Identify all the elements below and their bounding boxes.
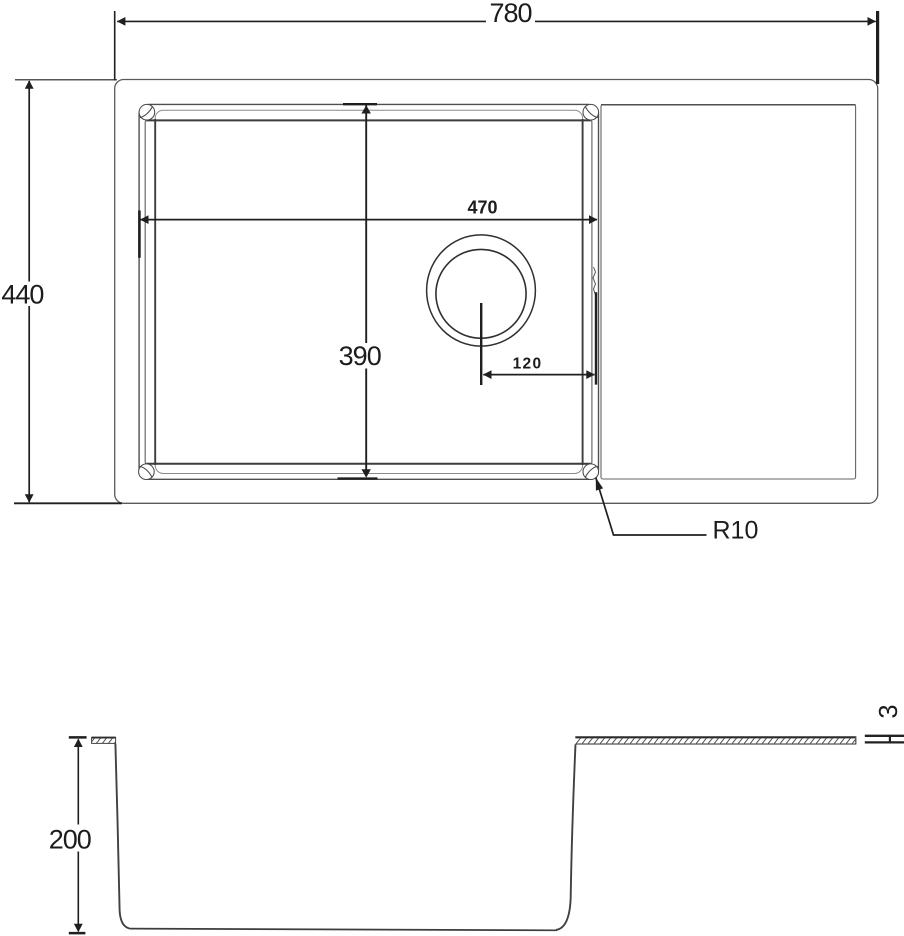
svg-text:390: 390 [339, 341, 381, 371]
svg-text:780: 780 [489, 0, 531, 28]
svg-text:R10: R10 [713, 517, 759, 545]
svg-text:3: 3 [875, 704, 903, 718]
svg-text:440: 440 [1, 279, 43, 309]
svg-text:470: 470 [467, 197, 497, 217]
svg-text:200: 200 [49, 824, 91, 854]
svg-text:120: 120 [513, 356, 543, 373]
